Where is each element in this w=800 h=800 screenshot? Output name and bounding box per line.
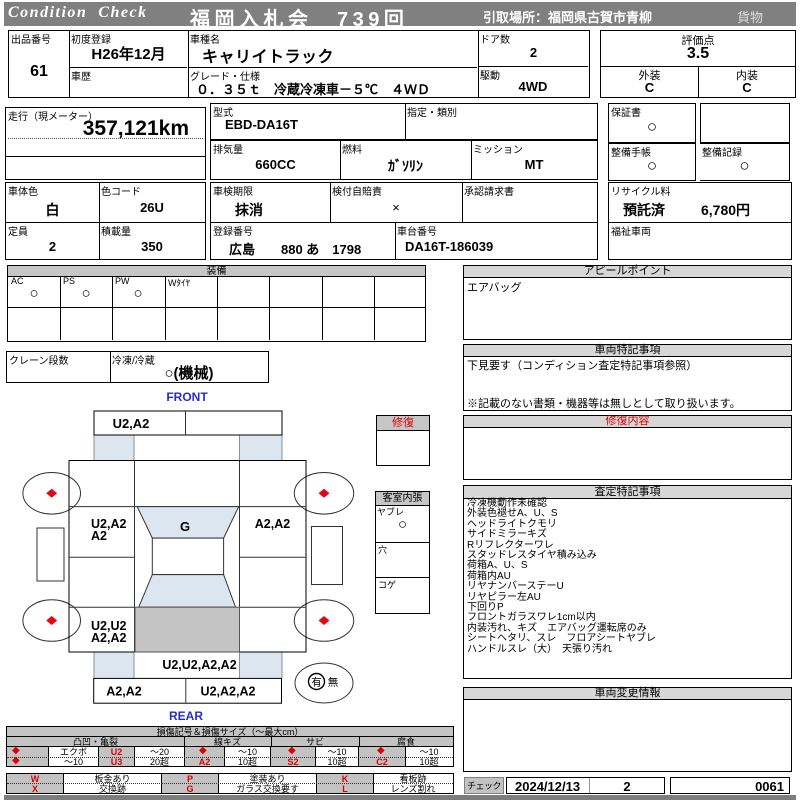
svg-text:REAR: REAR — [169, 709, 203, 723]
svg-text:無: 無 — [328, 676, 339, 689]
svg-text:有: 有 — [311, 676, 322, 689]
svg-text:A2,A2: A2,A2 — [106, 685, 141, 699]
svg-text:A2,A2: A2,A2 — [255, 517, 290, 531]
svg-text:U2,A2,A2: U2,A2,A2 — [201, 685, 256, 699]
svg-text:A2: A2 — [91, 529, 107, 543]
svg-text:U2,A2: U2,A2 — [113, 416, 150, 431]
svg-text:A2,A2: A2,A2 — [91, 631, 126, 645]
svg-text:G: G — [180, 519, 190, 534]
svg-text:U2,U2,A2,A2: U2,U2,A2,A2 — [162, 658, 236, 672]
